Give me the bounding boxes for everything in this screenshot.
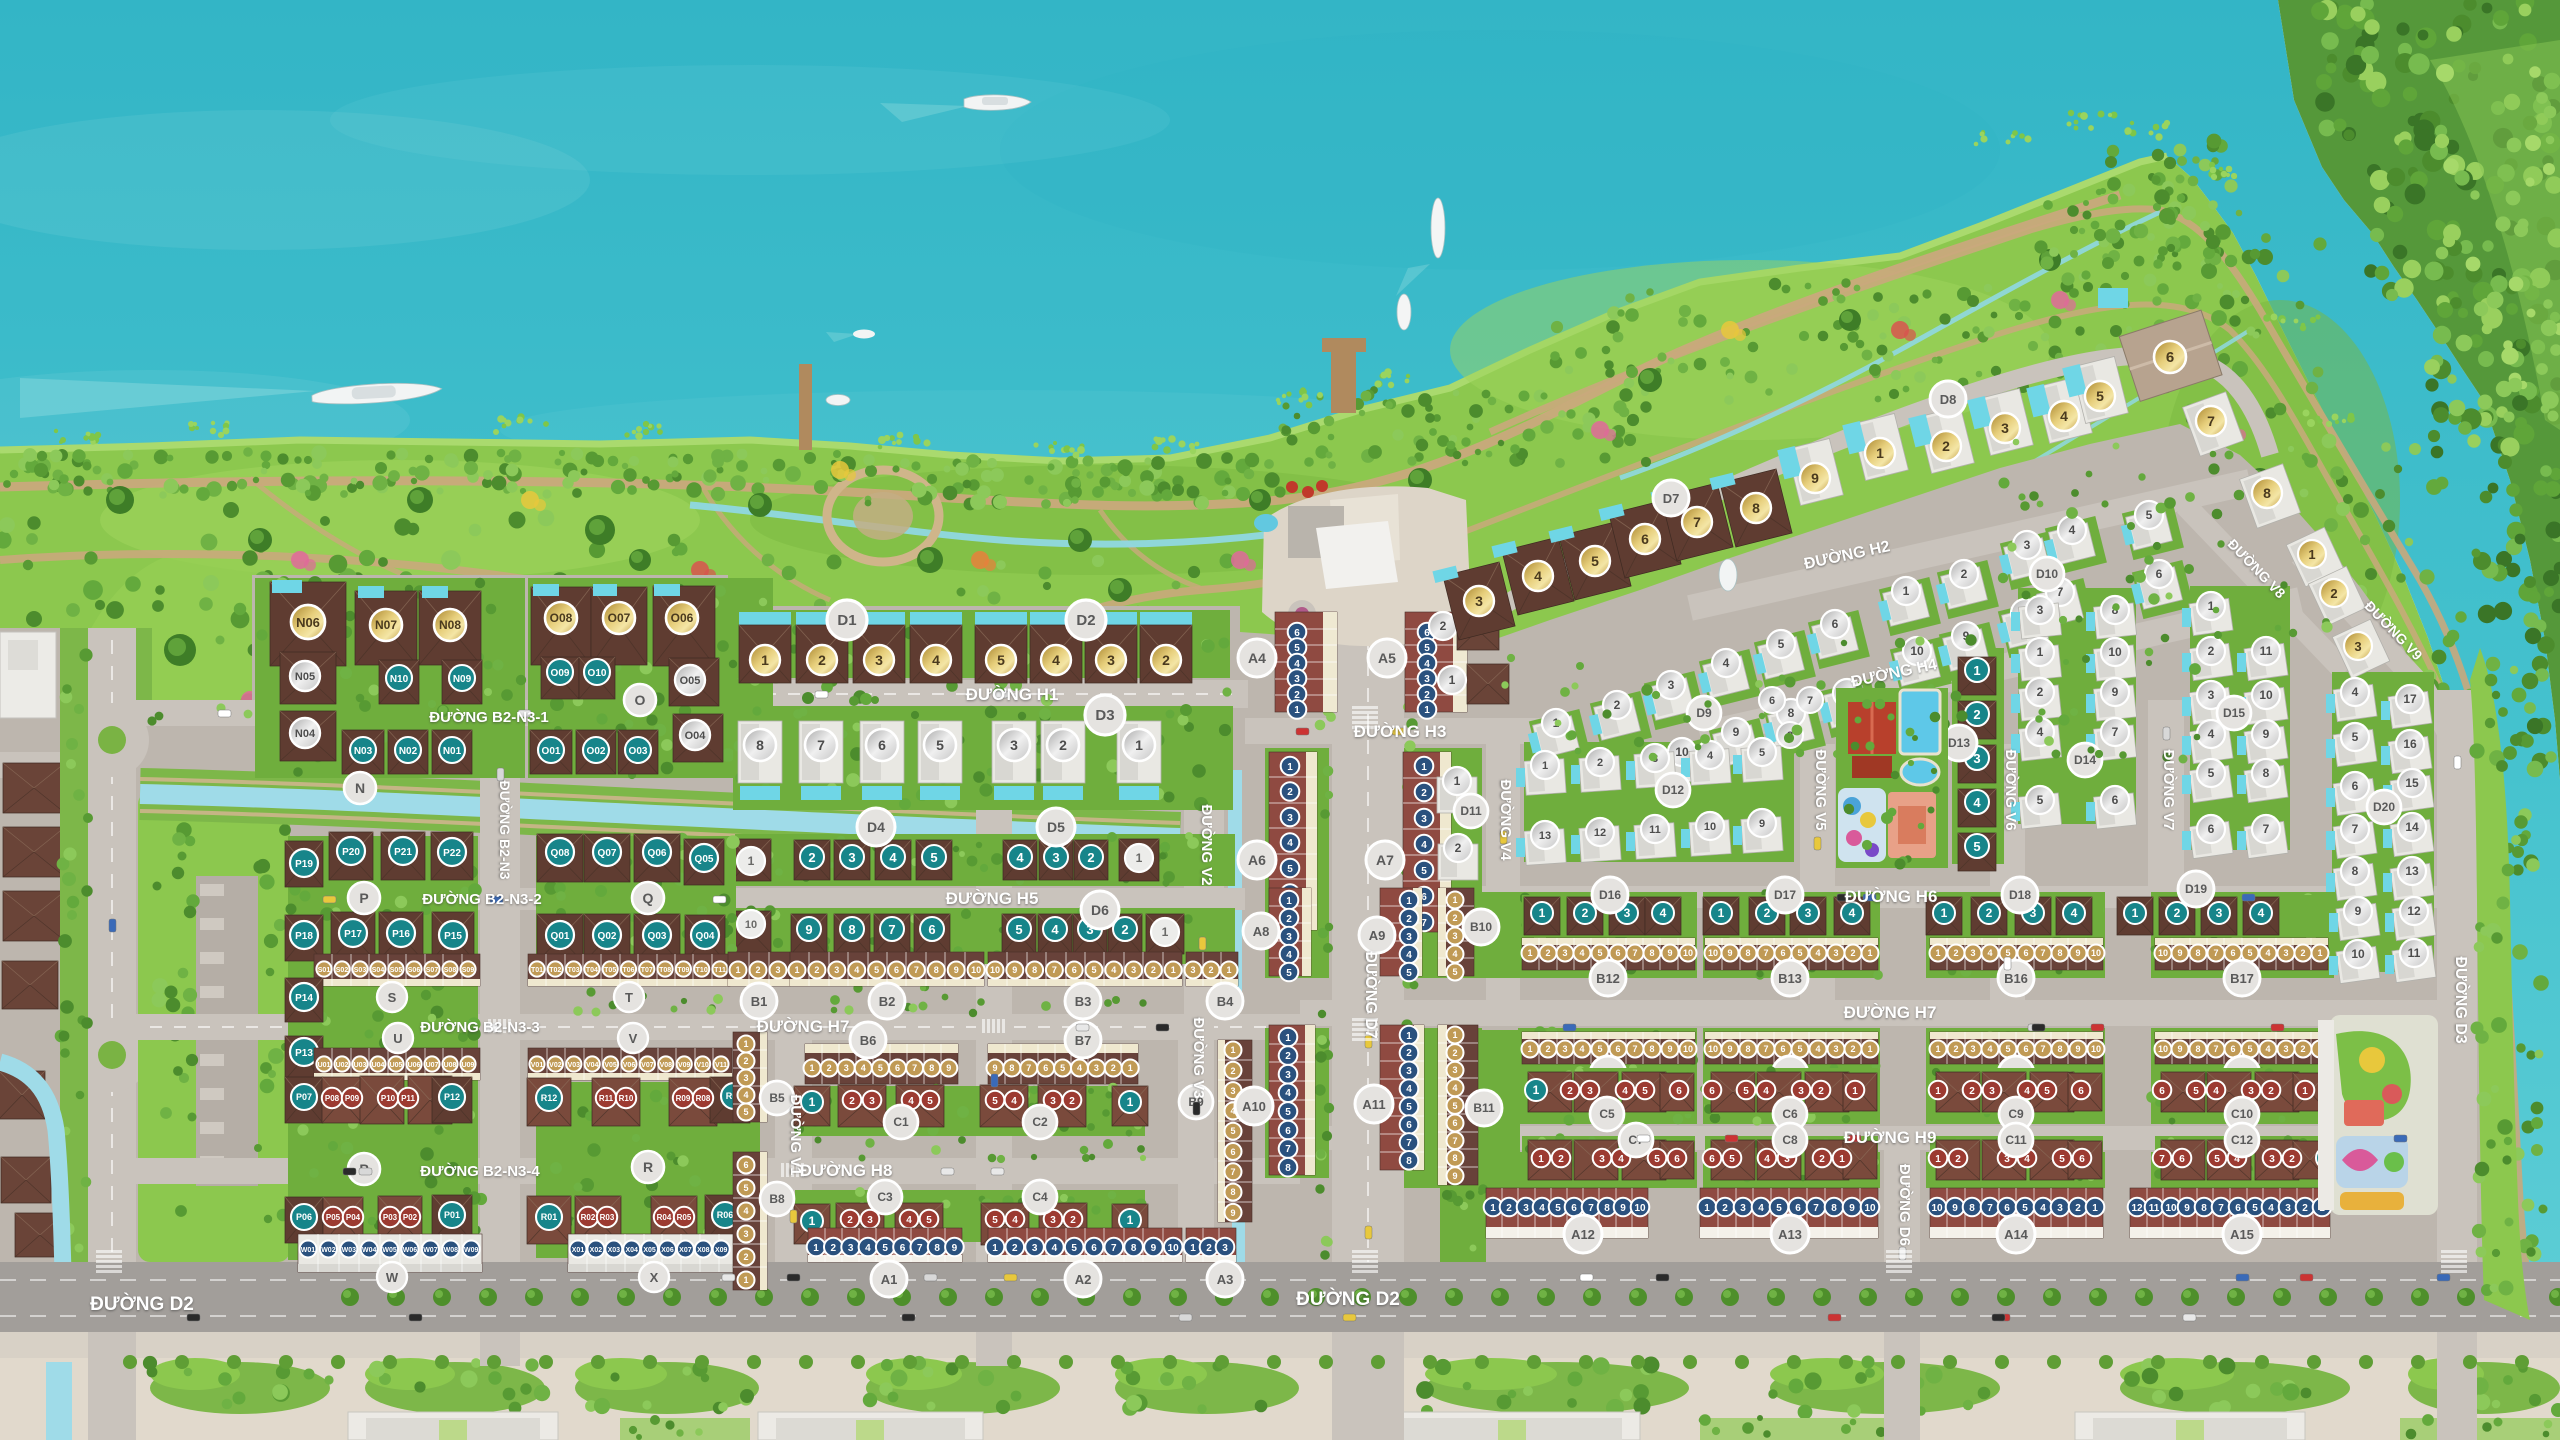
svg-text:9: 9 [1452,1171,1457,1181]
svg-text:C12: C12 [2231,1133,2253,1147]
svg-text:8: 8 [934,965,939,975]
svg-text:B6: B6 [860,1033,877,1048]
svg-text:4: 4 [2024,1086,2030,1097]
svg-text:T03: T03 [568,967,580,974]
svg-text:3: 3 [1094,1063,1099,1073]
svg-text:2: 2 [743,1056,748,1066]
svg-text:X04: X04 [625,1247,638,1254]
svg-text:5: 5 [1287,864,1293,875]
svg-text:8: 8 [2057,948,2062,958]
svg-text:N08: N08 [439,618,461,632]
svg-text:7: 7 [1763,948,1768,958]
svg-text:1: 1 [1538,1154,1544,1165]
svg-text:7: 7 [2213,1044,2218,1054]
svg-text:3: 3 [869,1096,875,1107]
svg-text:4: 4 [1052,1243,1058,1254]
svg-text:T01: T01 [531,967,543,974]
svg-text:3: 3 [867,1215,873,1226]
svg-text:7: 7 [1632,1044,1637,1054]
svg-text:9: 9 [1727,1044,1732,1054]
svg-text:2: 2 [831,1243,837,1254]
svg-text:2: 2 [1955,1154,1961,1165]
svg-text:T05: T05 [604,967,616,974]
svg-text:P14: P14 [295,993,313,1004]
svg-text:9: 9 [2177,1044,2182,1054]
svg-text:8: 8 [1745,1044,1750,1054]
svg-text:1: 1 [1127,1213,1134,1227]
svg-text:4: 4 [2213,1086,2219,1097]
svg-text:D16: D16 [1599,888,1621,902]
svg-text:O09: O09 [551,668,570,679]
svg-text:B10: B10 [1470,920,1492,934]
svg-text:4: 4 [1618,1154,1624,1165]
svg-text:7: 7 [912,1063,917,1073]
svg-text:3: 3 [1452,1065,1457,1075]
svg-text:10: 10 [2091,1044,2101,1054]
svg-text:N06: N06 [296,615,320,630]
svg-text:3: 3 [1050,1096,1056,1107]
svg-text:4: 4 [1111,965,1116,975]
svg-text:B4: B4 [1217,994,1234,1009]
svg-text:8: 8 [848,922,855,937]
svg-text:5: 5 [2247,948,2252,958]
svg-text:Q05: Q05 [695,854,714,865]
svg-text:S: S [388,990,397,1005]
svg-text:1: 1 [735,965,740,975]
svg-text:O06: O06 [671,611,694,625]
svg-text:7: 7 [1285,1144,1291,1155]
svg-text:1: 1 [1718,906,1725,920]
svg-text:P12: P12 [444,1092,460,1102]
svg-text:W01: W01 [301,1247,316,1254]
svg-text:4: 4 [861,1063,866,1073]
svg-text:9: 9 [2177,948,2182,958]
svg-text:R01: R01 [541,1212,558,1222]
svg-text:2: 2 [1819,1154,1825,1165]
svg-text:W04: W04 [362,1247,377,1254]
svg-text:6: 6 [743,1160,748,1170]
svg-text:Q04: Q04 [696,931,715,942]
svg-text:Q03: Q03 [648,931,667,942]
svg-text:O03: O03 [629,746,648,757]
svg-text:B11: B11 [1473,1101,1495,1115]
svg-text:3: 3 [1285,1070,1291,1081]
svg-text:V06: V06 [623,1062,636,1069]
svg-text:10: 10 [1168,1243,1180,1254]
svg-text:B12: B12 [1596,971,1620,986]
svg-text:2: 2 [1206,1243,1212,1254]
svg-text:X02: X02 [590,1247,603,1254]
svg-text:1: 1 [1162,925,1169,939]
svg-text:4: 4 [1987,1044,1992,1054]
svg-text:7: 7 [817,737,825,753]
svg-text:5: 5 [1285,1107,1291,1118]
svg-text:1: 1 [1941,906,1948,920]
svg-text:W03: W03 [342,1247,357,1254]
svg-text:1: 1 [809,1095,816,1109]
svg-text:4: 4 [932,652,940,668]
svg-text:R12: R12 [541,1093,558,1103]
svg-text:A4: A4 [1248,650,1266,666]
svg-text:T09: T09 [677,967,689,974]
svg-text:5: 5 [2247,1044,2252,1054]
svg-text:2: 2 [1558,1154,1564,1165]
svg-text:2: 2 [1567,1086,1573,1097]
svg-text:8: 8 [1009,1063,1014,1073]
svg-text:1: 1 [1867,948,1872,958]
svg-text:P: P [359,890,368,906]
svg-text:A8: A8 [1253,924,1270,939]
svg-text:5: 5 [1452,967,1457,977]
svg-text:V05: V05 [604,1062,617,1069]
svg-text:1: 1 [743,1039,748,1049]
svg-text:4: 4 [1849,906,1856,920]
svg-text:5: 5 [1015,922,1022,937]
svg-text:5: 5 [1452,1101,1457,1111]
svg-text:1: 1 [1527,1044,1532,1054]
svg-text:D3: D3 [1095,707,1114,724]
svg-text:B1: B1 [751,994,768,1009]
svg-text:2: 2 [1230,1066,1235,1076]
svg-text:10: 10 [990,965,1000,975]
svg-text:10: 10 [2158,948,2168,958]
svg-text:V01: V01 [531,1062,544,1069]
svg-text:2: 2 [1953,948,1958,958]
svg-text:2: 2 [1059,737,1067,753]
svg-text:2: 2 [1012,1243,1018,1254]
svg-text:8: 8 [756,737,764,753]
svg-text:W06: W06 [403,1247,418,1254]
svg-text:1: 1 [1135,737,1143,753]
svg-text:X05: X05 [643,1247,656,1254]
svg-text:1: 1 [1852,1086,1858,1097]
svg-text:3: 3 [1222,1243,1228,1254]
svg-text:9: 9 [1151,1243,1157,1254]
svg-text:3: 3 [1052,850,1059,865]
svg-text:2: 2 [814,965,819,975]
svg-text:2: 2 [743,1252,748,1262]
svg-text:5: 5 [2005,948,2010,958]
svg-text:4: 4 [1011,1096,1017,1107]
svg-text:6: 6 [900,1243,906,1254]
svg-text:1: 1 [1527,948,1532,958]
svg-text:O07: O07 [608,611,631,625]
svg-text:P20: P20 [342,847,360,858]
svg-text:3: 3 [1805,906,1812,920]
svg-text:P18: P18 [295,931,313,942]
svg-text:1: 1 [1935,1154,1941,1165]
svg-text:7: 7 [1632,948,1637,958]
svg-text:7: 7 [2040,948,2045,958]
svg-text:D6: D6 [1091,902,1109,918]
svg-text:4: 4 [908,1096,914,1107]
svg-text:S08: S08 [444,967,457,974]
svg-text:O05: O05 [680,675,701,687]
svg-text:10: 10 [971,965,981,975]
svg-text:4: 4 [1012,1215,1018,1226]
svg-text:2: 2 [1986,906,1993,920]
svg-text:8: 8 [1131,1243,1137,1254]
svg-text:8: 8 [929,1063,934,1073]
svg-text:R04: R04 [657,1213,672,1222]
svg-text:B16: B16 [2004,971,2028,986]
svg-text:3: 3 [775,965,780,975]
svg-text:6: 6 [1091,1243,1097,1254]
svg-text:Q06: Q06 [648,848,667,859]
svg-text:8: 8 [1230,1187,1235,1197]
svg-text:6: 6 [1043,1063,1048,1073]
svg-text:1: 1 [794,965,799,975]
svg-text:8: 8 [1649,948,1654,958]
svg-text:1: 1 [1867,1044,1872,1054]
svg-text:X07: X07 [679,1247,692,1254]
svg-text:3: 3 [743,1229,748,1239]
svg-text:B3: B3 [1075,994,1092,1009]
svg-text:5: 5 [1654,1154,1660,1165]
svg-text:S09: S09 [462,967,475,974]
svg-text:S03: S03 [354,967,367,974]
svg-text:3: 3 [2283,948,2288,958]
svg-text:A10: A10 [1242,1099,1266,1114]
svg-text:3: 3 [1562,1044,1567,1054]
svg-text:1: 1 [1452,895,1457,905]
svg-text:2: 2 [1087,850,1094,865]
svg-text:V07: V07 [641,1062,654,1069]
svg-text:3: 3 [834,965,839,975]
svg-text:7: 7 [888,922,895,937]
svg-text:2: 2 [1850,1044,1855,1054]
svg-text:U09: U09 [462,1062,475,1069]
svg-text:3: 3 [1970,1044,1975,1054]
svg-text:9: 9 [805,922,812,937]
svg-text:V02: V02 [549,1062,562,1069]
svg-text:3: 3 [1424,674,1430,685]
svg-text:4: 4 [1052,652,1060,668]
svg-text:3: 3 [1406,932,1412,943]
svg-text:U02: U02 [336,1062,349,1069]
svg-text:5: 5 [992,1096,998,1107]
svg-text:X01: X01 [572,1247,585,1254]
svg-text:6: 6 [1230,1147,1235,1157]
svg-text:B13: B13 [1778,971,1802,986]
svg-text:5: 5 [1286,968,1292,979]
svg-text:3: 3 [1599,1154,1605,1165]
svg-text:5: 5 [1642,1086,1648,1097]
svg-text:6: 6 [2159,1086,2165,1097]
svg-text:C9: C9 [2008,1107,2024,1121]
svg-text:6: 6 [1615,1044,1620,1054]
svg-text:D17: D17 [1774,888,1796,902]
svg-text:A2: A2 [1075,1272,1092,1287]
svg-text:2: 2 [1452,1048,1457,1058]
svg-text:P08: P08 [325,1094,340,1103]
svg-text:4: 4 [1622,1086,1628,1097]
svg-text:9: 9 [2075,948,2080,958]
svg-text:3: 3 [1286,932,1292,943]
svg-text:10: 10 [1708,1044,1718,1054]
svg-text:D18: D18 [2009,888,2031,902]
svg-text:6: 6 [1674,1154,1680,1165]
svg-text:1: 1 [2317,948,2322,958]
svg-text:4: 4 [1579,1044,1584,1054]
svg-text:U08: U08 [444,1062,457,1069]
svg-text:U01: U01 [318,1062,331,1069]
svg-text:4: 4 [889,850,897,865]
svg-text:1: 1 [1533,1083,1540,1097]
svg-text:1: 1 [1421,762,1427,773]
svg-text:10: 10 [2091,948,2101,958]
svg-text:V10: V10 [696,1062,709,1069]
svg-text:2: 2 [2300,948,2305,958]
svg-text:W05: W05 [382,1247,397,1254]
svg-text:S06: S06 [408,967,421,974]
svg-text:1: 1 [1539,906,1546,920]
svg-text:O10: O10 [588,668,607,679]
svg-text:O04: O04 [685,730,707,742]
svg-text:C6: C6 [1782,1107,1798,1121]
svg-text:10: 10 [1708,948,1718,958]
svg-text:3: 3 [1050,1215,1056,1226]
svg-text:S07: S07 [426,967,439,974]
svg-text:4: 4 [1987,948,1992,958]
svg-text:4: 4 [1421,840,1427,851]
svg-text:1: 1 [1136,851,1143,865]
svg-text:1: 1 [761,652,769,668]
svg-text:6: 6 [2230,1044,2235,1054]
svg-text:N04: N04 [295,728,316,740]
svg-text:D1: D1 [837,612,856,629]
svg-text:6: 6 [1780,948,1785,958]
svg-text:10: 10 [745,919,757,931]
svg-text:5: 5 [2005,1044,2010,1054]
svg-text:B5: B5 [769,1091,785,1105]
svg-text:3: 3 [1970,948,1975,958]
svg-text:X09: X09 [715,1247,728,1254]
svg-text:A7: A7 [1376,852,1394,868]
svg-text:S02: S02 [336,967,349,974]
svg-text:Q07: Q07 [598,848,617,859]
svg-text:2: 2 [808,850,815,865]
svg-text:7: 7 [2213,948,2218,958]
svg-text:4: 4 [1815,948,1820,958]
svg-text:9: 9 [2075,1044,2080,1054]
svg-text:3: 3 [1421,814,1427,825]
svg-text:3: 3 [844,1063,849,1073]
svg-text:3: 3 [1294,674,1300,685]
svg-text:4: 4 [2265,948,2270,958]
svg-text:T06: T06 [622,967,634,974]
svg-text:5: 5 [992,1215,998,1226]
svg-text:9: 9 [946,1063,951,1073]
svg-text:P22: P22 [443,848,461,859]
svg-text:8: 8 [2057,1044,2062,1054]
svg-text:R09: R09 [676,1094,691,1103]
svg-text:1: 1 [1190,1243,1196,1254]
svg-text:C10: C10 [2231,1107,2253,1121]
svg-text:1: 1 [1285,1033,1291,1044]
svg-text:5: 5 [743,1183,748,1193]
svg-text:7: 7 [914,965,919,975]
svg-text:6: 6 [1406,1120,1412,1131]
svg-text:R08: R08 [696,1094,711,1103]
svg-text:R03: R03 [600,1213,615,1222]
svg-text:2: 2 [1545,948,1550,958]
svg-text:4: 4 [1452,949,1457,959]
svg-text:C1: C1 [893,1115,909,1129]
svg-text:O02: O02 [587,746,606,757]
svg-text:9: 9 [1230,1208,1235,1218]
svg-text:C2: C2 [1032,1115,1048,1129]
svg-text:1: 1 [743,1275,748,1285]
svg-text:S04: S04 [372,967,385,974]
svg-text:2: 2 [827,1063,832,1073]
svg-text:Q01: Q01 [551,931,570,942]
svg-text:1: 1 [1935,1086,1941,1097]
svg-text:N05: N05 [295,671,315,683]
svg-text:6: 6 [1285,1126,1291,1137]
svg-text:5: 5 [1797,1044,1802,1054]
svg-text:4: 4 [1660,906,1667,920]
svg-text:2: 2 [1111,1063,1116,1073]
svg-text:8: 8 [2195,1044,2200,1054]
svg-text:3: 3 [848,850,855,865]
svg-text:5: 5 [927,1096,933,1107]
svg-text:9: 9 [954,965,959,975]
svg-text:6: 6 [1780,1044,1785,1054]
svg-text:2: 2 [1208,965,1213,975]
svg-text:2: 2 [2289,1154,2295,1165]
svg-text:2: 2 [1151,965,1156,975]
svg-text:2: 2 [1953,1044,1958,1054]
svg-text:3: 3 [1032,1243,1038,1254]
svg-text:5: 5 [926,1215,932,1226]
svg-text:1: 1 [1226,965,1231,975]
svg-text:5: 5 [878,1063,883,1073]
svg-text:5: 5 [930,850,937,865]
svg-text:6: 6 [2023,1044,2028,1054]
svg-text:6: 6 [928,922,935,937]
svg-text:P10: P10 [381,1094,396,1103]
svg-text:8: 8 [2195,948,2200,958]
svg-text:V03: V03 [568,1062,581,1069]
svg-text:6: 6 [1615,948,1620,958]
svg-text:4: 4 [1815,1044,1820,1054]
svg-text:2: 2 [1121,922,1128,937]
svg-text:3: 3 [1287,813,1293,824]
svg-text:1: 1 [1286,896,1292,907]
svg-text:3: 3 [1833,948,1838,958]
svg-text:1: 1 [1406,1031,1412,1042]
svg-text:P06: P06 [296,1212,312,1222]
svg-text:2: 2 [818,652,826,668]
svg-text:P15: P15 [444,931,462,942]
svg-text:5: 5 [936,737,944,753]
svg-text:5: 5 [882,1243,888,1254]
svg-text:4: 4 [743,1206,748,1216]
svg-text:5: 5 [1597,948,1602,958]
svg-text:U05: U05 [390,1062,403,1069]
svg-text:9: 9 [1667,1044,1672,1054]
svg-text:6: 6 [2179,1154,2185,1165]
svg-text:8: 8 [1452,1153,1457,1163]
svg-text:3: 3 [1624,906,1631,920]
svg-text:1: 1 [1839,1154,1845,1165]
svg-text:7: 7 [1452,1136,1457,1146]
svg-text:4: 4 [2071,906,2078,920]
svg-text:1: 1 [809,1063,814,1073]
svg-text:3: 3 [2216,906,2223,920]
svg-text:T11: T11 [714,967,726,974]
